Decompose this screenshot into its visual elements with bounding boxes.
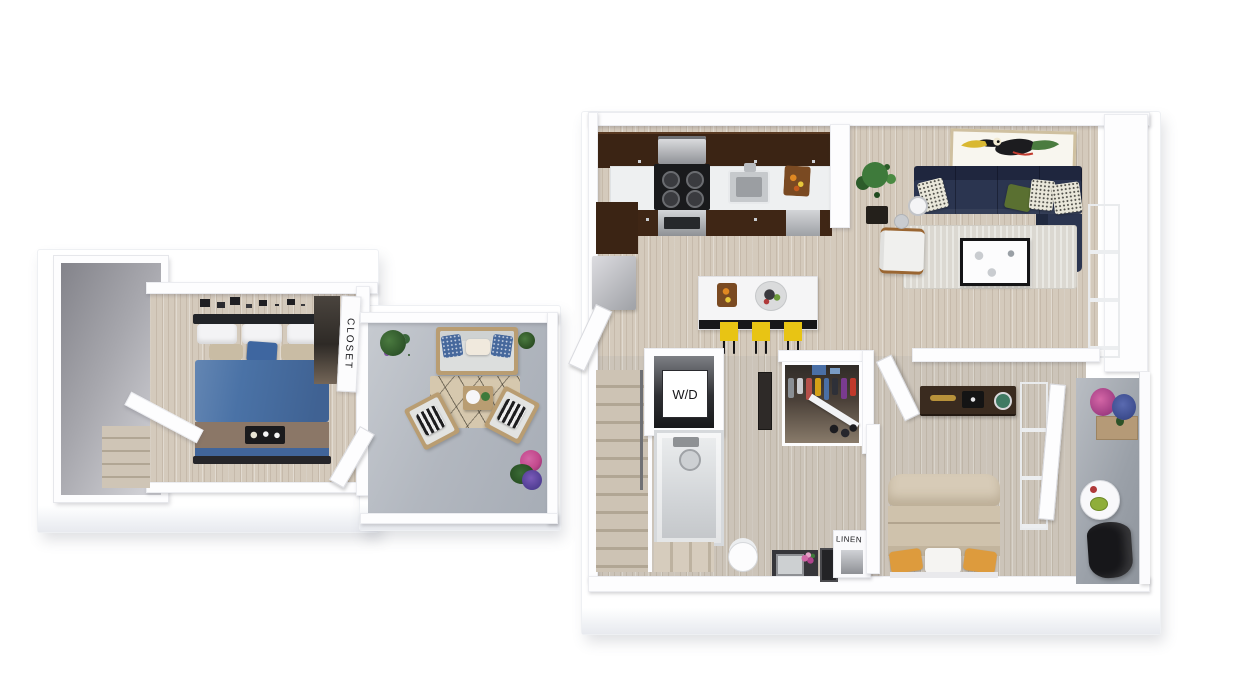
headboard bbox=[193, 314, 331, 324]
outdoor-sofa bbox=[436, 327, 518, 375]
burner bbox=[686, 171, 704, 189]
garment bbox=[850, 378, 856, 396]
main-balcony bbox=[1076, 372, 1150, 584]
bedroom-left-wall bbox=[866, 424, 880, 574]
upper-closet-interior bbox=[314, 296, 340, 384]
shower bbox=[654, 430, 724, 546]
balcony-bottom-wall bbox=[360, 513, 558, 524]
upper-bedroom-wall-art bbox=[200, 299, 210, 307]
balcony-plant bbox=[380, 330, 406, 356]
outdoor-pillow-lumbar bbox=[466, 339, 490, 355]
walkin-closet-top-wall bbox=[778, 350, 872, 362]
planter-flowers-blue bbox=[1112, 394, 1136, 420]
table-green-plate bbox=[1090, 497, 1108, 511]
balcony-right-wall bbox=[547, 312, 558, 524]
closet-shoes bbox=[826, 422, 858, 442]
balcony-flowers bbox=[508, 450, 544, 492]
table-red-item bbox=[1090, 486, 1097, 493]
kitchen-sink bbox=[728, 170, 770, 204]
bed-duvet-blue bbox=[195, 360, 329, 422]
toucan-illustration bbox=[953, 131, 1068, 164]
bedroom-top-wall bbox=[912, 348, 1100, 362]
stair-handrail bbox=[640, 370, 643, 490]
balcony-plant-small bbox=[518, 332, 535, 349]
bathroom-vanity bbox=[772, 550, 818, 576]
plant-leaves bbox=[862, 162, 888, 188]
main-bed bbox=[888, 474, 1000, 578]
coffee-table bbox=[960, 238, 1030, 286]
refrigerator bbox=[592, 256, 636, 310]
living-room-sliding-door bbox=[1088, 204, 1120, 358]
kitchen-living-pillar bbox=[830, 124, 850, 228]
outdoor-pillow-blue bbox=[491, 334, 514, 359]
linen-label: LINEN bbox=[836, 535, 862, 545]
bed-duvet-foot bbox=[195, 448, 329, 456]
sink-basin bbox=[736, 177, 762, 197]
balcony-round-table bbox=[1080, 480, 1120, 520]
plant-pot bbox=[866, 206, 888, 224]
side-table bbox=[894, 214, 909, 229]
bed-pillow-orange bbox=[963, 548, 998, 574]
kitchen-upper-cabinets bbox=[598, 132, 830, 168]
walkin-closet-interior bbox=[782, 362, 862, 446]
burner bbox=[662, 190, 680, 208]
sofa-pillow-patterned bbox=[1051, 181, 1083, 215]
balcony-planter-box bbox=[1090, 388, 1138, 440]
garment bbox=[832, 378, 838, 395]
balcony-railing bbox=[1140, 372, 1150, 584]
main-level-plan: W/D LINEN bbox=[582, 110, 1162, 634]
range-hood bbox=[658, 136, 706, 164]
bed-pillow-orange bbox=[889, 548, 924, 574]
island-serving-plate bbox=[755, 281, 787, 311]
oven-front bbox=[658, 210, 706, 236]
table-tray bbox=[466, 390, 480, 404]
planter-box bbox=[1096, 416, 1138, 440]
dresser-tray bbox=[962, 391, 984, 408]
bed-base-board bbox=[890, 572, 998, 578]
corner-steps bbox=[654, 542, 714, 572]
shower-head bbox=[679, 449, 701, 471]
island-cutting-board bbox=[717, 283, 737, 307]
gas-range bbox=[654, 164, 710, 210]
table-plant bbox=[481, 392, 490, 401]
bed-breakfast-tray bbox=[245, 426, 285, 444]
dresser-gold-decor bbox=[930, 395, 956, 401]
garment bbox=[797, 378, 803, 394]
kitchen-corner-cabinet bbox=[596, 202, 638, 254]
upper-bedroom-top-wall bbox=[146, 282, 378, 294]
closet-label: CLOSET bbox=[342, 318, 356, 371]
bed-pillow-tan bbox=[281, 344, 315, 360]
oven-window bbox=[664, 217, 700, 229]
bed-duvet-roll bbox=[888, 474, 1000, 506]
sofa-pillow-patterned bbox=[1028, 179, 1055, 211]
upper-stairs bbox=[102, 426, 150, 488]
bed-pillow-tan bbox=[209, 344, 243, 360]
footboard bbox=[193, 456, 331, 464]
upper-bed bbox=[193, 314, 331, 464]
toilet bbox=[728, 542, 758, 572]
shower-arm bbox=[673, 437, 699, 447]
burner bbox=[662, 171, 680, 189]
upper-level-plan: CLOSET bbox=[38, 244, 560, 536]
balcony-top-wall bbox=[360, 312, 558, 323]
lounge-chair bbox=[1086, 521, 1134, 580]
garment bbox=[788, 378, 794, 398]
upper-bedroom-bottom-wall bbox=[146, 482, 362, 493]
main-top-wall bbox=[588, 112, 1150, 126]
garment bbox=[815, 378, 821, 396]
accent-armchair bbox=[879, 227, 925, 275]
dresser-clock bbox=[994, 392, 1012, 410]
linen-interior bbox=[841, 550, 863, 574]
sink-faucet bbox=[744, 163, 756, 172]
hallway-artwork bbox=[758, 372, 772, 430]
floor-lamp bbox=[908, 196, 928, 216]
closet-shelf-stack bbox=[812, 365, 826, 375]
vanity-flowers bbox=[800, 552, 816, 566]
flower-purple-blue bbox=[522, 470, 542, 490]
washer-dryer-closet: W/D bbox=[644, 348, 724, 436]
outdoor-coffee-table bbox=[463, 386, 493, 410]
outdoor-pillow-blue bbox=[441, 334, 464, 359]
washer-dryer-door: W/D bbox=[662, 370, 708, 418]
bar-stool bbox=[752, 322, 770, 354]
potted-plant-living bbox=[848, 154, 902, 226]
bed-pillow-white bbox=[197, 324, 237, 344]
garment bbox=[841, 378, 847, 399]
bed-pillow-white bbox=[925, 548, 961, 573]
cutting-board-counter bbox=[783, 165, 811, 196]
upper-balcony bbox=[360, 312, 558, 524]
washer-dryer-label: W/D bbox=[672, 387, 697, 402]
dishwasher bbox=[786, 210, 820, 236]
dresser bbox=[920, 386, 1016, 416]
burner bbox=[686, 190, 704, 208]
garment bbox=[824, 378, 830, 400]
main-bottom-wall bbox=[588, 576, 1150, 592]
